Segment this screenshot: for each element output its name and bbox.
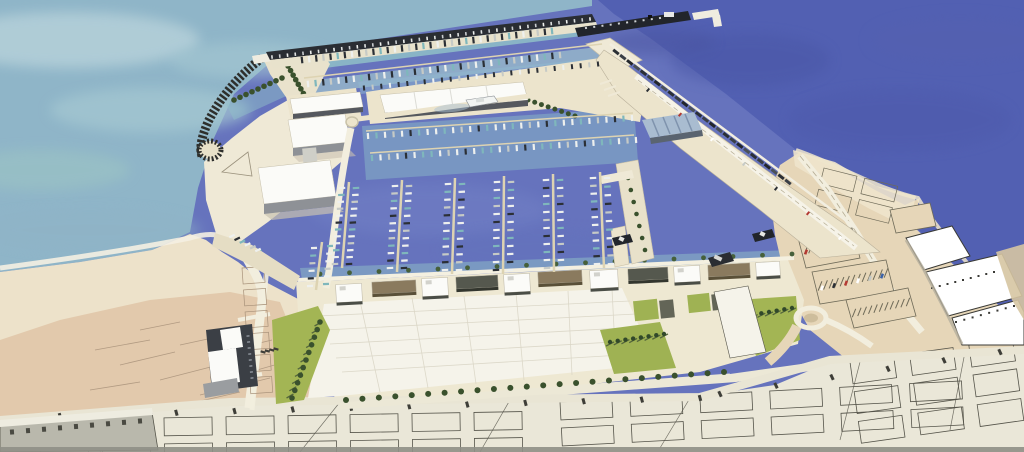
berthed-boats: [458, 198, 465, 201]
berthed-boats: [347, 249, 354, 252]
berthed-boats: [593, 247, 600, 250]
berthed-boats: [507, 245, 514, 248]
quay-platform-trees: [566, 111, 571, 116]
boat-row: [375, 132, 378, 138]
berthed-boats: [311, 247, 317, 250]
boat-row: [464, 149, 467, 155]
berthed-boats: [494, 197, 501, 200]
quay-platform-trees: [559, 109, 564, 114]
boat-row: [601, 139, 604, 145]
ferry-deck-dots: [610, 24, 612, 26]
berthed-boats: [456, 269, 463, 272]
berthed-boats: [401, 267, 408, 270]
basin-east-quay-trees: [634, 212, 639, 217]
white-building-windows: [962, 279, 964, 281]
ferry-deck-dots: [651, 18, 653, 20]
berthed-boats: [558, 259, 565, 262]
berthed-boats: [456, 253, 463, 256]
tower-building-roof-2: [220, 327, 243, 350]
berthed-boats: [592, 216, 599, 219]
berthed-boats: [558, 251, 565, 254]
boat-row: [584, 140, 587, 146]
pavilion: [426, 280, 432, 284]
marina-pontoon: [553, 174, 554, 272]
berthed-boats: [493, 253, 500, 256]
promenade-palms: [583, 260, 588, 265]
berthed-boats: [442, 261, 449, 264]
seafront-door-marks: [10, 429, 14, 434]
seafront-door-marks: [106, 421, 110, 426]
quay-platform-trees: [532, 100, 537, 105]
boat-row: [371, 155, 374, 161]
boat-row: [537, 121, 540, 127]
boat-row: [541, 143, 544, 149]
berthed-boats: [349, 228, 356, 231]
berthed-boats: [591, 208, 598, 211]
berthed-boats: [606, 228, 613, 231]
boulevard-trees: [474, 387, 480, 393]
berthed-boats: [604, 185, 611, 188]
ferry-deck-dots: [634, 20, 636, 22]
berthed-boats: [557, 211, 564, 214]
berthed-boats: [457, 222, 464, 225]
berthed-boats: [337, 201, 344, 204]
boat-row: [507, 146, 510, 152]
berthed-boats: [507, 269, 514, 272]
ferry-deck-dots: [593, 26, 595, 28]
berthed-boats: [507, 213, 514, 216]
berthed-boats: [337, 207, 344, 210]
boulevard-trees: [672, 373, 678, 379]
boat-row: [618, 138, 621, 144]
berthed-boats: [507, 261, 514, 264]
promenade-palms: [701, 255, 706, 260]
berthed-boats: [444, 206, 451, 209]
boat-row: [580, 118, 583, 124]
roundabout-island: [804, 314, 818, 323]
seafront-door-marks: [42, 427, 46, 432]
boulevard-trees: [721, 369, 727, 375]
boulevard-trees: [540, 382, 546, 388]
promenade-palms: [495, 264, 500, 269]
pavilion: [674, 265, 701, 282]
quay-tree-row: [255, 86, 261, 92]
berthed-boats: [508, 181, 515, 184]
marina-pontoon: [503, 176, 504, 274]
pavilion: [594, 272, 600, 276]
berthed-boats: [606, 220, 613, 223]
quay-tree-row: [273, 78, 279, 84]
lawn-west-trees: [306, 350, 312, 356]
pavilion: [678, 268, 684, 272]
boat-row: [477, 125, 480, 131]
quay-tree-row: [261, 83, 267, 89]
berthed-boats: [493, 269, 500, 272]
quay-mini-roundabout: [346, 117, 358, 127]
boat-row: [490, 147, 493, 153]
boat-row: [511, 123, 514, 129]
berthed-boats: [458, 191, 465, 194]
quay-tree-row: [237, 94, 243, 100]
berthed-boats: [401, 259, 408, 262]
white-building-windows: [993, 271, 995, 273]
boat-row: [554, 120, 557, 126]
berthed-boats: [557, 203, 564, 206]
boat-row: [592, 140, 595, 146]
berthed-boats: [590, 185, 597, 188]
berthed-boats: [459, 183, 466, 186]
boat-row: [622, 116, 625, 122]
berthed-boats: [339, 187, 346, 190]
white-building-windows: [947, 283, 949, 285]
berthed-boats: [604, 194, 611, 197]
boat-row: [614, 116, 617, 122]
berthed-boats: [444, 214, 451, 217]
ferry-deck-dots: [659, 17, 661, 19]
boat-row: [413, 152, 416, 158]
lawn-west-trees: [317, 319, 323, 325]
quay-tree-row: [243, 92, 249, 98]
berthed-boats: [351, 207, 358, 210]
berthed-boats: [390, 207, 397, 210]
white-building-windows: [980, 314, 982, 316]
berthed-boats: [403, 229, 410, 232]
berthed-boats: [543, 219, 550, 222]
promenade-palms: [672, 257, 677, 262]
boat-row: [430, 151, 433, 157]
berthed-boats: [543, 227, 550, 230]
berthed-boats: [493, 229, 500, 232]
pavilion: [538, 270, 583, 284]
lawn-west-trees: [309, 342, 315, 348]
berthed-boats: [507, 229, 514, 232]
berthed-boats: [508, 197, 515, 200]
promenade-palms: [760, 253, 765, 258]
boat-row: [473, 148, 476, 154]
berthed-boats: [493, 245, 500, 248]
boat-row: [367, 133, 370, 139]
lawn-west-trees: [314, 327, 320, 333]
boulevard-trees: [458, 388, 464, 394]
berthed-boats: [593, 255, 600, 258]
boat-row: [605, 117, 608, 123]
boat-row: [384, 132, 387, 138]
lawn-east-palms: [767, 310, 771, 314]
boat-row: [401, 131, 404, 137]
berthed-boats: [493, 237, 500, 240]
white-building-windows: [1013, 305, 1015, 307]
boat-row: [532, 144, 535, 150]
boulevard-trees: [606, 378, 612, 384]
berthed-boats: [507, 221, 514, 224]
boulevard-trees: [524, 384, 530, 390]
boat-row: [443, 128, 446, 134]
berthed-boats: [456, 261, 463, 264]
berthed-boats: [388, 252, 395, 255]
boat-row: [563, 120, 566, 126]
boat-row: [486, 125, 489, 131]
lawn-west-trees: [300, 365, 306, 371]
berthed-boats: [402, 244, 409, 247]
berthed-boats: [493, 261, 500, 264]
berthed-boats: [323, 283, 329, 286]
lawn-west-trees: [312, 334, 318, 340]
berthed-boats: [543, 211, 550, 214]
seafront-door-marks: [122, 420, 126, 425]
berthed-boats: [348, 242, 355, 245]
white-building-windows: [988, 312, 990, 314]
berthed-boats: [593, 239, 600, 242]
boat-row: [460, 127, 463, 133]
berthed-boats: [591, 200, 598, 203]
berthed-boats: [458, 206, 465, 209]
boat-row: [422, 151, 425, 157]
lawn-mid-palms: [662, 332, 666, 336]
berthed-boats: [348, 235, 355, 238]
boulevard-trees: [425, 391, 431, 397]
seafront-door-marks: [90, 422, 94, 427]
courtyard-lawn: [687, 293, 711, 313]
boat-row: [575, 141, 578, 147]
basin-east-quay-trees: [629, 188, 634, 193]
white-building-windows: [955, 321, 957, 323]
berthed-boats: [307, 285, 313, 288]
boat-row: [503, 124, 506, 130]
quay-platform-trees: [539, 102, 544, 107]
marina-masterplan-rendering: [0, 0, 1024, 452]
pavilion: [628, 267, 669, 281]
boulevard-trees: [639, 375, 645, 381]
quay-tree-row: [279, 75, 285, 81]
berthed-boats: [405, 192, 412, 195]
berthed-boats: [544, 267, 551, 270]
berthed-boats: [404, 207, 411, 210]
boat-row: [435, 128, 438, 134]
berthed-boats: [543, 243, 550, 246]
quay-platform-trees: [552, 107, 557, 112]
boulevard-trees: [655, 374, 661, 380]
boat-row: [524, 144, 527, 150]
boat-row: [439, 150, 442, 156]
berthed-boats: [325, 260, 331, 263]
berthed-boats: [607, 246, 614, 249]
lawn-west-trees: [295, 380, 301, 386]
pavilion: [336, 283, 363, 302]
boat-row: [392, 131, 395, 137]
berthed-boats: [351, 201, 358, 204]
boulevard-trees: [442, 390, 448, 396]
berthed-boats: [493, 213, 500, 216]
berthed-boats: [608, 263, 615, 266]
ferry-deck-dots: [601, 25, 603, 27]
boat-row: [396, 153, 399, 159]
ferry-deck-dots: [618, 22, 620, 24]
seafront-door-marks: [138, 418, 142, 423]
berthed-boats: [332, 263, 339, 266]
berthed-boats: [590, 177, 597, 180]
berthed-boats: [457, 230, 464, 233]
lawn-mid-palms: [623, 338, 627, 342]
white-building-windows: [985, 273, 987, 275]
quay-tree-row: [267, 81, 273, 87]
pavilion: [372, 280, 417, 294]
boat-row: [481, 147, 484, 153]
berthed-boats: [389, 237, 396, 240]
berthed-boats: [508, 189, 515, 192]
lawn-mid-palms: [608, 340, 612, 344]
basin-east-quay-trees: [631, 200, 636, 205]
lawn-east-palms: [790, 306, 794, 310]
berthed-boats: [309, 262, 315, 265]
ferry-deck-dots: [585, 27, 587, 29]
berthed-boats: [308, 277, 314, 280]
pavilion: [590, 269, 619, 288]
pavilion: [422, 277, 449, 296]
berthed-boats: [327, 245, 333, 248]
white-building-windows: [963, 319, 965, 321]
boulevard-trees: [705, 370, 711, 376]
berthed-boats: [309, 270, 315, 273]
berthed-boats: [389, 222, 396, 225]
berthed-boats: [443, 230, 450, 233]
white-building-windows: [996, 310, 998, 312]
berthed-boats: [592, 231, 599, 234]
berthed-boats: [543, 203, 550, 206]
lawn-west-trees: [289, 395, 295, 401]
boat-row: [520, 122, 523, 128]
boat-row: [546, 121, 549, 127]
pavilion: [508, 276, 514, 280]
boat-row: [498, 146, 501, 152]
boulevard-trees: [343, 397, 349, 403]
boat-row: [379, 154, 382, 160]
berthed-boats: [352, 194, 359, 197]
boat-row: [597, 117, 600, 123]
quay-platform-trees: [546, 104, 551, 109]
berthed-boats: [607, 254, 614, 257]
courtyard-lawn: [633, 299, 659, 321]
promenade-palms: [790, 252, 795, 257]
berthed-boats: [557, 179, 564, 182]
berthed-boats: [557, 243, 564, 246]
berthed-boats: [558, 267, 565, 270]
pavilion: [504, 273, 531, 292]
boat-row: [447, 150, 450, 156]
boat-row: [418, 129, 421, 135]
promenade-palms: [465, 265, 470, 270]
berthed-boats: [388, 244, 395, 247]
berthed-boats: [605, 203, 612, 206]
berthed-boats: [457, 245, 464, 248]
berthed-boats: [326, 252, 332, 255]
berthed-boats: [543, 179, 550, 182]
berthed-boats: [443, 222, 450, 225]
boat-row: [405, 153, 408, 159]
berthed-boats: [387, 259, 394, 262]
ferry-deck-dots: [642, 19, 644, 21]
boat-row: [456, 149, 459, 155]
frame-bottom-edge: [0, 447, 1024, 452]
boat-row: [528, 122, 531, 128]
boulevard-trees: [688, 371, 694, 377]
berthed-boats: [405, 200, 412, 203]
berthed-boats: [390, 215, 397, 218]
promenade-palms: [436, 267, 441, 272]
white-building-windows: [1005, 307, 1007, 309]
berthed-boats: [507, 237, 514, 240]
berthed-boats: [392, 185, 399, 188]
berthed-boats: [443, 237, 450, 240]
berthed-boats: [387, 267, 394, 270]
berthed-boats: [335, 228, 342, 231]
lawn-west-trees: [298, 372, 304, 378]
berthed-boats: [325, 268, 331, 271]
boulevard-trees: [590, 379, 596, 385]
berthed-boats: [557, 187, 564, 190]
berthed-boats: [443, 245, 450, 248]
seafront-door-marks: [74, 424, 78, 429]
ferry-deck-dots: [626, 21, 628, 23]
basin-east-quay-trees: [637, 224, 642, 229]
yacht-cabin: [476, 98, 484, 103]
boat-row: [635, 137, 638, 143]
white-building-windows: [939, 285, 941, 287]
boat-row: [588, 118, 591, 124]
boulevard-trees: [359, 396, 365, 402]
berthed-boats: [391, 192, 398, 195]
white-building-windows: [954, 281, 956, 283]
berthed-boats: [336, 221, 343, 224]
quay-tree-row: [231, 97, 237, 103]
berthed-boats: [324, 275, 330, 278]
berthed-boats: [336, 214, 343, 217]
lawn-east-palms: [759, 311, 763, 315]
ferry-bridge: [664, 12, 674, 17]
boat-row: [626, 138, 629, 144]
berthed-boats: [333, 249, 340, 252]
berthed-boats: [310, 254, 316, 257]
berthed-boats: [442, 253, 449, 256]
promenade-palms: [524, 263, 529, 268]
boat-row: [388, 154, 391, 160]
berthed-boats: [544, 251, 551, 254]
berthed-boats: [494, 181, 501, 184]
berthed-boats: [507, 205, 514, 208]
pavilion: [756, 261, 781, 276]
boulevard-trees: [573, 380, 579, 386]
boat-row: [631, 115, 634, 121]
lawn-mid-palms: [654, 333, 658, 337]
berthed-boats: [543, 195, 550, 198]
berthed-boats: [494, 189, 501, 192]
promenade-palms: [347, 270, 352, 275]
sea-dark-patch: [790, 90, 1010, 150]
pergola-slats: [659, 299, 675, 318]
lawn-mid-palms: [631, 336, 635, 340]
berthed-boats: [493, 221, 500, 224]
berthed-boats: [605, 211, 612, 214]
pavilion: [340, 286, 346, 290]
berthed-boats: [557, 219, 564, 222]
boat-row: [469, 126, 472, 132]
white-building-windows: [970, 277, 972, 279]
boat-row: [550, 143, 553, 149]
boat-row: [558, 142, 561, 148]
berthed-boats: [334, 242, 341, 245]
boat-row: [494, 124, 497, 130]
berthed-boats: [457, 237, 464, 240]
boat-row: [452, 127, 455, 133]
